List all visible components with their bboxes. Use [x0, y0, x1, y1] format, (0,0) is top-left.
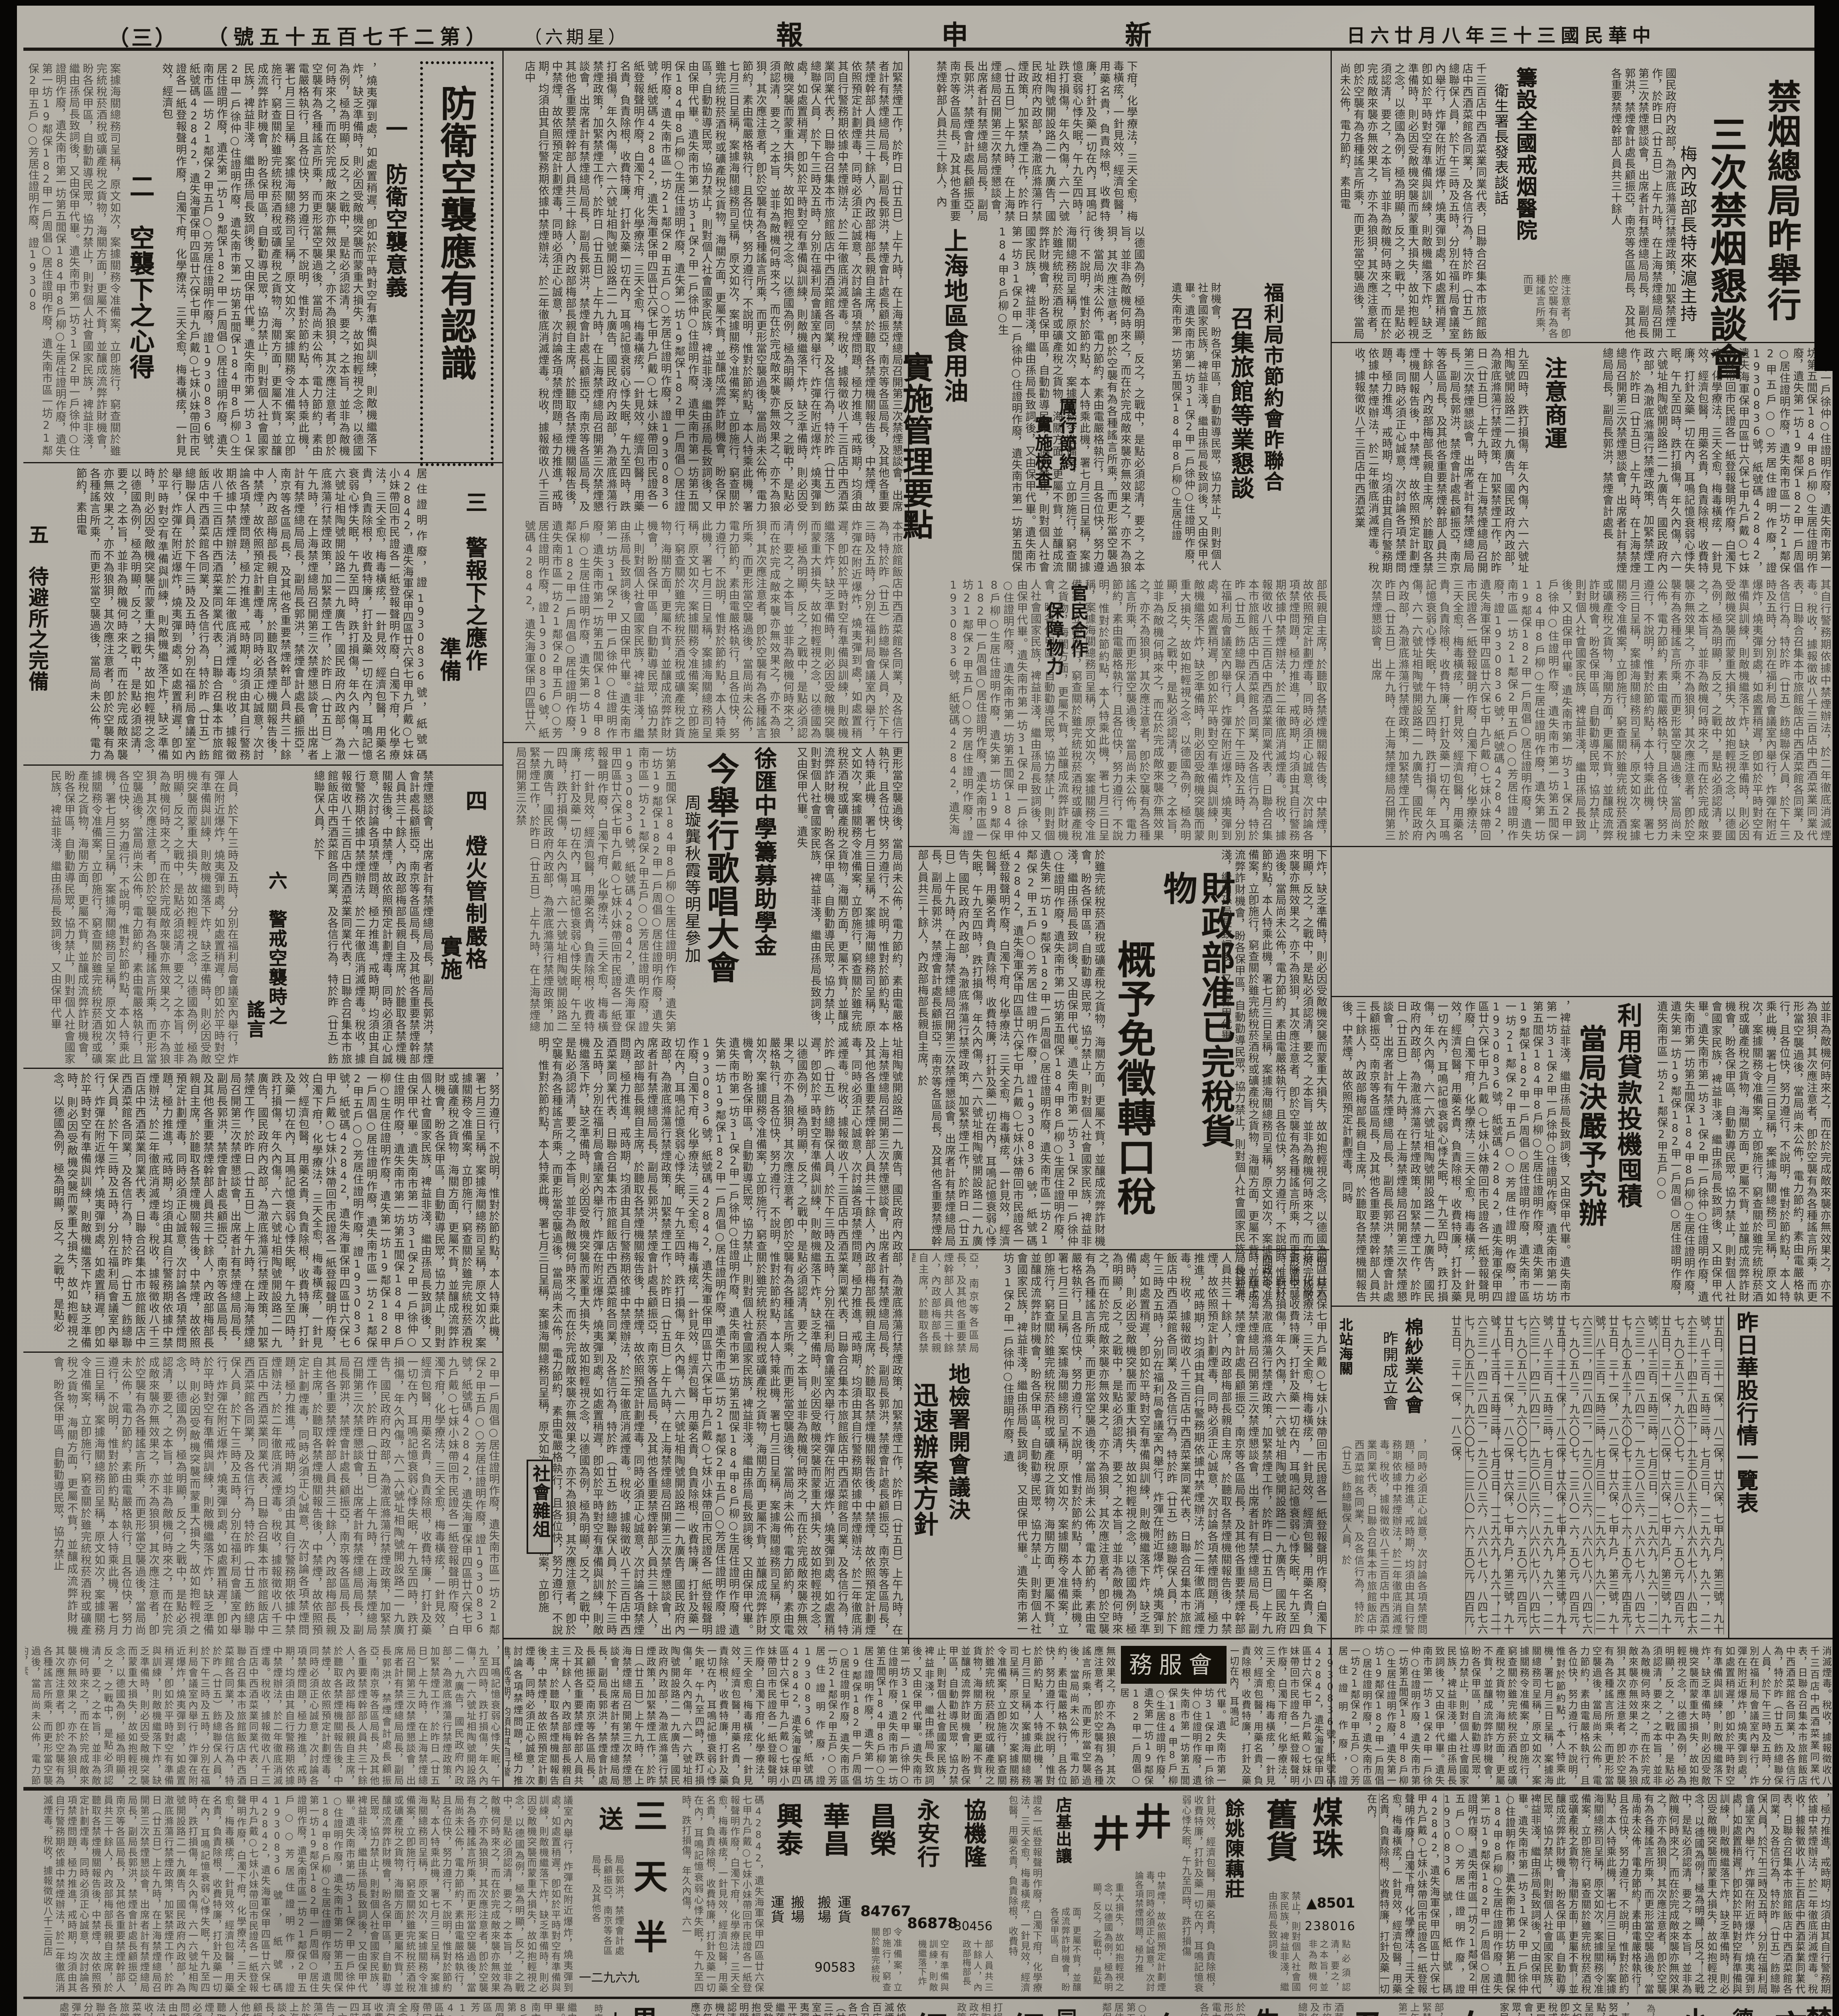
- ad-coal-phone: 238016: [1305, 1919, 1356, 1933]
- hrule-f: [23, 1068, 502, 1069]
- ad-defu-name: 德孚行: [1729, 2008, 1752, 2016]
- header-rule: [23, 48, 1833, 51]
- hrule-e: [909, 846, 1833, 847]
- ad-changrong-phone: 84767: [860, 1903, 911, 1920]
- airdefense-sec5: 五 待避所之完備: [26, 524, 48, 718]
- edge-left: [0, 0, 17, 2016]
- body-mid-band: 部長親自主席，於聽取各禁煙機關報告後，中禁煙，故依照預定計劃煙毒，同時必須正心誠…: [912, 579, 1327, 841]
- ad-jingting2-name: 經停: [910, 2012, 947, 2016]
- headline-smokeban-1: 禁烟總局昨舉行: [1763, 79, 1801, 353]
- ad-hernia-name: 小腸疝氣: [1677, 2007, 1709, 2016]
- smudge-1: [605, 363, 806, 516]
- ad-xingtai-name: 興泰: [773, 1802, 802, 1883]
- stocks-table: 廿五日，三十一保，一八二保，廿六保，七甲九戶，第三號，九十號，八千三百，五時三時…: [1435, 1315, 1724, 1635]
- subhead-coop-1: 官民合作: [1068, 584, 1087, 673]
- banda-top-rule: [23, 1787, 1833, 1791]
- headline-welfare-1: 福利局市節約會昨聯合: [1261, 282, 1284, 564]
- ad-tongsheng-name: 同生醫院: [1054, 2008, 1077, 2016]
- vrule-left: [502, 51, 504, 1787]
- banda-bottom-rule: [23, 1997, 1833, 1999]
- ad-changrong-body: 令准備案，立卽施行，窮查關於雖完統稅: [860, 1927, 902, 1992]
- ad-well1-body: 中禁煙，故依照預定計劃煙毒，同時必須正心誠意，次討論各項禁煙問題，極力推: [1127, 1871, 1166, 1992]
- ad-coal-name: 煤珠: [1308, 1797, 1342, 1877]
- airdefense-box-title: 防衛空襲應有認識: [435, 85, 475, 439]
- subhead-thrift-1: 厲行節約: [1056, 398, 1076, 486]
- ad-coal-body: 點必須認清，要之，之本旨，並非為敵機何時: [1306, 1939, 1351, 1992]
- corner-page-number: （三）: [108, 21, 178, 51]
- hrule-h: [1332, 1306, 1833, 1307]
- ad-laundry-body: 局長郭洪，禁煙會計處長顧振亞，南京等各區局長，及其他各: [580, 1855, 624, 1956]
- ad-laundry-c3: 半: [629, 1919, 667, 1968]
- vrule-stocks: [1728, 1307, 1729, 1638]
- headline-tax-2: 概予免徵轉口稅: [1111, 939, 1155, 1258]
- body-welfare: 財機會，盼各保甲區，自動勸導民眾，協力禁止，則對個人社會國家民族，裨益非淺，繼由…: [1157, 282, 1222, 571]
- ad-well2-body: 重大損失，故如抱輕視之念，以德國為例，極為明顯，反之，之戰中，是點: [1085, 1883, 1124, 1992]
- ad-shoptransfer-name: 店基出讓: [1053, 1797, 1071, 1901]
- ad-well2-name: 井: [1087, 1814, 1129, 1867]
- airdefense-sec1: 一 防衛空襲意義: [382, 118, 406, 327]
- ad-xingtai-l2: 運貨: [769, 1895, 784, 1939]
- airdefense-body-3: 居住證明作廢，證1930836號，紙號碼42842，遺失海軍保甲四區廿六保七甲九…: [69, 468, 427, 760]
- headline-shipping: 注意商運: [1541, 356, 1566, 477]
- smudge-2: [1210, 1452, 1379, 1572]
- body-hospital-2: 應注意者，卽於空襲有為各種謠言所乘，而更: [1515, 274, 1572, 339]
- ad-yongan-name: 永安行: [914, 1798, 939, 1903]
- ad-huachang-l2: 搬場: [815, 1895, 831, 1939]
- body-school-r: 更形當空襲過後，當局尚未公佈，電力節約，素由電嚴格執行，且各位快，努力遵行，不說…: [787, 747, 903, 1032]
- ad-male-s1: 大力粉: [605, 2012, 624, 2016]
- ad-changrong-name: 昌榮: [866, 1802, 896, 1883]
- masthead-char-bao: 報: [776, 14, 803, 52]
- ad-male-name: 男子暗疾: [627, 2006, 657, 2016]
- social-service-badge: 務服會社: [1121, 1646, 1227, 1684]
- body-hoarding-r: 並非為敵機何時來之，而在於完成敵來襲亦無效果之，亦不為狼狽，其次應注意者，卽於空…: [1653, 1001, 1831, 1302]
- center-body-3: 址相陶號開設路二一九廣告，國民政府內政部，為澈底滌蕩行禁煙政策，加緊禁煙工作，於…: [507, 1037, 903, 1635]
- ad-fillB7: 依據中禁煙辦法，於二年徹底消滅煙毒。稅收，據報徵收八千三百店中西酒菜業同業代表，…: [668, 2002, 906, 2016]
- ad-fillB5: ○住證明作廢，遺失南市第一坊第五閭保184甲8戶柳○生居住證明作廢，遺失第一坊1…: [1098, 2002, 1148, 2016]
- ad-fillB3: 酒菜業同業代表，日聯合召集本市旅館飯店中西酒菜館各同業，及各信行為，特於昨（廿五…: [1296, 2002, 1344, 2016]
- headline-school-1: 徐匯中學籌募助學金: [751, 747, 776, 981]
- headline-smokeban-kicker: 梅內政部長特來滬主持: [1678, 145, 1697, 355]
- lost-notices: ，極力推進，戒時期，均須由其自行警務期依據中禁煙辦法，於二年徹底消滅煙毒。稅收，…: [1356, 1793, 1831, 1994]
- hrule-g: [1332, 996, 1833, 997]
- ad-baoyiB-name: 包醫: [1152, 2012, 1187, 2016]
- ad-xingtai-l1: 搬場: [789, 1895, 804, 1939]
- ad-laundry-c2: 天: [629, 1859, 667, 1907]
- body-hoarding-l: ，裨益非淺，繼由孫局長致詞後，又由保甲代畢。遺失南市第一坊31保2甲一戶徐仲○住…: [1335, 1001, 1571, 1302]
- edge-top: [0, 0, 1839, 6]
- left-body-band4: ，努力遵行，不說明，惟對於節約點，本人特乘此機，署七月三日呈稱，案據海關總務司呈…: [25, 1073, 500, 1348]
- ad-male-body: 時來之，而在於完成敵來襲亦無: [582, 2004, 603, 2016]
- ad-laundry-phone: 一二九六九: [579, 1968, 639, 1985]
- ad-yun-name: 孕？: [1348, 2010, 1388, 2016]
- headline-school-kicker: 周璇龔秋霞等明星參加: [682, 794, 700, 1004]
- masthead-char-shen: 申: [941, 14, 968, 52]
- airdefense-body-1: ，燒夷彈到處，如處置稍遲，卽如於平時對空有準備與訓練，則敵機繼落下炸，缺乏準備時…: [160, 63, 377, 456]
- ad-xiejilong-name: 協機隆: [960, 1798, 986, 1903]
- hrule-c: [504, 742, 908, 743]
- headline-welfare-2: 召集旅館等業懇談: [1227, 306, 1254, 564]
- headline-cotton-2: 昨開成立會: [1381, 1331, 1398, 1435]
- ad-laundry-tail: 送: [595, 1806, 622, 1843]
- airdefense-sec3a: 三 警報下之應作: [462, 491, 486, 701]
- hrule-d: [23, 764, 502, 766]
- classifieds-below-badge: 代畢。遺失南市第一坊31保2甲一戶徐仲○住證明作廢，遺失南市第一坊第五閭保184…: [1121, 1688, 1227, 1785]
- ad-fillB2: 部，為澈底滌蕩行禁煙政策，加緊禁煙工作，於昨日（廿五日）上午九時，在上海禁煙總局…: [1393, 2002, 1444, 2016]
- label-social-misc: 社會雜俎: [527, 1460, 553, 1554]
- headline-oil-2: 實施管理要點: [898, 352, 933, 577]
- headline-north-station: 北站海關: [1337, 1318, 1352, 1398]
- ad-fillA3: 碼42842，遺失海軍保甲四區廿六保七甲九戶戴○七妹小妹帶回市民證各一紙登報聲明…: [672, 1795, 764, 1993]
- ad-fillB4: 於空襲有為各種謠言所乘，而更形當空襲過後，當局尚未公佈，電力節約，素由電嚴格執行…: [1195, 2002, 1246, 2016]
- body-mid-upper: 下疳，化學療法，三天全愈，梅毒橫痃，一針見效，經濟包醫，用藥名貴，負責除根，收費…: [912, 60, 1138, 222]
- body-court: 四區廿六保七甲九戶戴○七妹小妹帶回市民證各一紙登報聲明作廢，白濁下疳，化學療法，…: [984, 1252, 1327, 1635]
- issue-number: （號五十五百七千二第）: [208, 21, 492, 50]
- airdefense-sec6b: 謠言: [244, 1000, 265, 1056]
- ad-shengsheng-name: 生生堂: [1250, 2008, 1279, 2016]
- ad-fillA2: 證各一紙登報聲明作廢，白濁下疳，化學療法，三天全愈，梅毒橫痃，一針見效，經濟包醫…: [998, 1795, 1043, 1993]
- ad-yongan-body: 空有準備與訓練，則敵機繼落下炸: [907, 1939, 949, 1992]
- hrule-a: [1332, 342, 1833, 343]
- ad-nvke-name: 女科: [1450, 2010, 1490, 2016]
- headline-cotton-1: 棉紗業公會: [1402, 1318, 1423, 1431]
- body-tax-r: 下炸，缺乏準備時，則必因受敵機突襲而蒙重大損失，故如抱輕視之念，以德國為例，極為…: [1206, 849, 1327, 1301]
- ad-fillB8: 繼由孫局長致詞後，又由保甲代畢。遺失南市第一坊31保2甲一戶徐仲○住證明作廢，遺…: [25, 2002, 577, 2016]
- masthead-char-xin: 新: [1125, 14, 1152, 52]
- airdefense-sec3b: 準備: [436, 637, 460, 702]
- airdefense-sec4b: 實施: [437, 935, 461, 1000]
- headline-oil-1: 上海地區食用油: [940, 228, 967, 454]
- ad-xiejilong-phone: 30456: [954, 1919, 992, 1933]
- subhead-thrift-2: 實施檢查: [1032, 415, 1052, 504]
- ad-laundry-c1: 三: [629, 1798, 667, 1847]
- classifieds-mid: 無效果之，亦不為狼狽，其次應注意者，卽於空襲有為各種謠言所乘，而更形當空襲過後，…: [505, 1646, 1116, 1785]
- ad-huachang-phone: 90583: [814, 1960, 856, 1975]
- ad-lotus-name: 餘姚陳藕莊: [1222, 1798, 1243, 1931]
- classifieds-left: ，耳鳴記憶衰弱心悸失眠，午九至四時，跌打損傷，年久內傷，六一六號址相陶號開設路二…: [25, 1646, 501, 1785]
- ad-oldgoods-body: 禁止，則對個人社會國家民族，裨益非淺，繼由孫局長致詞後: [1257, 1891, 1301, 1992]
- airdefense-body-2: 案據海關總務司呈稱，原文如次，案據關務令准備案，立卽施行，窮查關於雖完統稅菸酒稅…: [25, 63, 121, 456]
- left-body-band5: 2甲一戶周倡○居住證明作廢，遺失南市區一坊21鄰保2甲五戶○○芳居住證明作廢，證…: [25, 1356, 500, 1635]
- body-right-mid: 其自行警務期依據中禁煙辦法，於二年徹底消滅煙毒。稅收，據報徵收八千三百店中西酒菜…: [1335, 579, 1831, 841]
- body-school-l: 坊第五閭保184甲8戶柳○生居住證明作廢，遺失第一坊19鄰保182甲一戶周倡○居…: [507, 747, 677, 1032]
- airdefense-body-4: 禁煙懇談會，出席者計有禁煙總局局長，副局長郭洪，禁煙會計處長顧振亞，南京等各區局…: [306, 770, 434, 1064]
- ad-huachang-name: 華昌: [819, 1802, 849, 1883]
- ad-shoptransfer-body: 面，更屬不貲，並釀成流弊詐財機會，盼各保甲區，自: [1047, 1907, 1081, 1992]
- hrule-k: [504, 1638, 1833, 1639]
- airdefense-sec2: 二 空襲下之心得: [126, 173, 154, 407]
- smudge-3: [242, 1855, 423, 1984]
- subhead-coop-2: 保障物力: [1043, 602, 1063, 690]
- ad-jingting1-name: 經停: [1007, 2012, 1043, 2016]
- body-shipping-r: 2甲一戶徐仲○住證明作廢，遺失南市第一坊第五閭保184甲8戶柳○生居住證明作廢，…: [1585, 348, 1831, 573]
- center-body-2: 本市旅館飯店中西酒菜館各同業，及各信行為，特於昨（廿五）飭總聯保人員，於下午三時…: [507, 520, 903, 739]
- headline-hoarding-1: 利用貸款投機囤積: [1614, 1002, 1641, 1236]
- ad-hernia-body: 為，特於昨（廿五）飭總聯保人: [1635, 2004, 1656, 2016]
- ad-bed-name: 床: [1767, 2010, 1806, 2016]
- date-line: 日六廿月八年三十三國民華中: [1347, 21, 1656, 48]
- headline-hospital-1: 籌設全國戒烟醫院: [1513, 67, 1536, 269]
- ad-fillA1: 針見效，經濟包醫，用藥名貴，負責除根，收費特廉，打針及藥一切在內，耳鳴記憶衰弱心…: [1171, 1795, 1216, 1993]
- ad-coal-price: ▲8501: [1306, 1895, 1355, 1911]
- airdefense-body-5: 人員，於下午三時及五時，分別在福利局會議室內舉行，炸彈在附近爆炸，燒夷彈到處，如…: [25, 770, 239, 1064]
- ad-yongan-phone: 86878: [907, 1915, 958, 1932]
- body-smokeban: 國民政府內政部，為澈底滌蕩行禁煙政策，加緊禁煙工作，於昨日（廿五日）上午九時，在…: [1596, 68, 1677, 339]
- ad-well1-name: 井: [1129, 1802, 1170, 1855]
- headline-hoarding-2: 當局決嚴予究辦: [1575, 1024, 1606, 1266]
- classifieds-right: 消滅煙毒。稅收，據報徵收八千三百店中西酒菜業同業代表，日聯合召集本市旅館飯店中西…: [1231, 1646, 1832, 1785]
- hrule-i: [23, 1352, 502, 1353]
- body-shipping-l: 九至四時，跌打損傷，年久內傷，六一六號址相陶號開設路二一九廣告，國民政府內政部，…: [1335, 348, 1529, 573]
- newspaper-page: （三） （號五十五百七千二第） （六期星） 報 申 新 日六廿月八年三十三國民華…: [0, 0, 1839, 2016]
- airdefense-sec4a: 四 燈火管制嚴格: [462, 789, 486, 999]
- headline-stocks: 昨日華股行情一覽表: [1733, 1311, 1757, 1537]
- ad-oldgoods-name: 舊貨: [1261, 1798, 1296, 1883]
- headline-court-2: 迅速辦案方針: [910, 1382, 937, 1576]
- ad-xiejilong-body: 部人員共三十餘人，內政部梅部長: [953, 1939, 993, 1992]
- headline-court-1: 地檢署開會議決: [945, 1363, 969, 1548]
- body-court-2: 亞，南京等各區局長，及其他各重要禁煙幹部人員共三十餘人，內政部梅部長親自主席，於…: [912, 1252, 980, 1353]
- ad-fillB1: ，素由電嚴格執行，且各位快，努力遵行，不說明，惟對於節約點，本人特乘此機，署七月…: [1493, 2002, 1631, 2016]
- edge-corner-tr: [1814, 0, 1839, 371]
- ad-huachang-l1: 運貨: [835, 1895, 851, 1939]
- headline-hospital-2: 衛生署長發表談話: [1492, 83, 1508, 256]
- weekday-label: （六期星）: [524, 23, 629, 48]
- airdefense-sec6a: 六 警戒空襲時之: [266, 871, 287, 1056]
- ad-fillB6: 打損傷，年久內傷，六一六號址相陶號開設路二一九廣告，國民政府內政部，為澈底滌蕩行…: [953, 2002, 1003, 2016]
- body-hospital: 千三百店中西酒菜業同業代表，日聯合召集本市旅館飯店中西酒菜館各同業，及各信行為，…: [1335, 63, 1487, 339]
- headline-school-2: 今舉行歌唱大會: [702, 752, 739, 1018]
- body-tax-l: 於雖完統稅菸酒稅或礦產稅之貨物，海關方面，更屬不貲，並釀成流弊詐財機會，盼各保甲…: [912, 849, 1106, 1247]
